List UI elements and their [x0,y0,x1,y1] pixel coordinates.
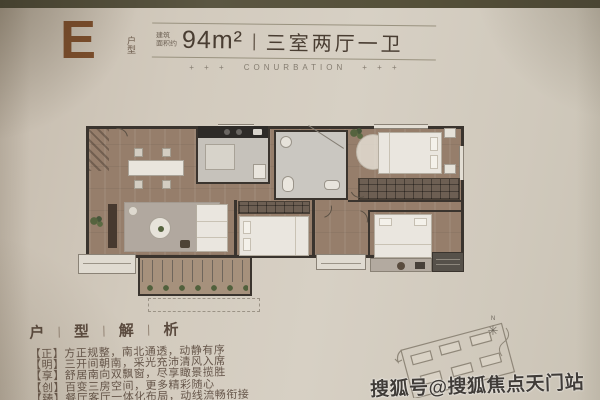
right-wall-window [459,146,464,180]
area-prefix-top: 建筑 [156,33,177,41]
title-separator: | [147,323,151,336]
plant-icon [350,128,364,140]
bedroom2-bed [239,216,309,256]
stove-burners-icon [224,129,230,135]
toilet-icon [282,176,294,192]
deco-word: CONURBATION [244,63,347,72]
area-prefix-bottom: 面积约 [156,40,177,48]
balcony-plants [142,284,248,293]
pillow [414,218,427,226]
unit-type-label: 户 型 [127,37,137,55]
floor-plan [78,116,470,320]
bedroom3-bed [374,214,432,258]
compass-star-icon: ✳ [488,323,499,338]
pillow [430,137,438,151]
bedroom2-wardrobe [238,201,310,214]
balcony [138,258,252,296]
ottoman-icon [180,240,190,248]
kitchen-sink-icon [253,129,262,135]
nightstand [444,128,456,138]
analysis-title-char: 户 [29,321,44,342]
interior-wall [368,210,464,212]
interior-wall [348,200,464,202]
nightstand [444,164,456,174]
bedroom3-desk [370,258,432,272]
pillow [243,221,251,234]
dining-set [126,146,188,192]
washer-icon [280,136,292,148]
desk-chair-icon [397,262,405,270]
sofa-cushion-line [197,221,227,222]
photo-top-edge [0,0,600,8]
interior-wall [234,200,237,258]
blanket-fold [295,217,296,255]
tv-cabinet [108,204,117,248]
pillow [379,218,392,226]
compass-north-label: N [482,316,504,322]
balcony-railing [142,260,248,282]
deco-subtitle: + + + CONURBATION + + + [150,63,440,72]
side-table-icon [128,206,138,216]
pillow [430,155,438,169]
pillow [243,238,251,251]
balcony-extension-dashed [148,298,260,312]
table-plant-icon [158,226,164,232]
blanket-fold [389,133,390,173]
entry-hatch-wall [89,129,109,171]
plant-icon [90,216,104,228]
kitchen-room [196,126,270,184]
analysis-lines: 【正】方正规整，南北通透，动静有序 【明】三开间朝南，采光充沛清风入席 【享】舒… [30,342,361,400]
title-separator: | [57,325,61,338]
deco-plus-right: + + + [362,63,400,72]
master-wardrobe [358,178,460,200]
deco-plus-left: + + + [189,63,227,72]
unit-analysis: 户 | 型 | 解 | 析 【正】方正规整，南北通透，动静有序 【明】三开间朝南… [29,314,361,400]
fridge-icon [253,164,266,179]
blanket-fold [375,244,431,245]
sofa-icon [196,204,228,252]
chair-icon [162,148,171,157]
compass: N ✳ [482,316,504,340]
bathroom-sink-icon [324,180,340,190]
area-band: 建筑 面积约 94m² | 三室两厅一卫 [152,23,436,61]
coffee-table-icon [149,217,171,239]
dining-table-icon [128,160,184,176]
ac-platform [432,252,464,272]
chair-icon [134,180,143,189]
desk-cabinet-icon [415,262,425,269]
master-window [374,124,428,129]
bay-window-left [78,254,136,274]
brochure-photo-page: E 户 型 建筑 面积约 94m² | 三室两厅一卫 + + + CONURBA… [0,0,600,400]
analysis-title-char: 析 [163,318,178,339]
chair-icon [134,148,143,157]
area-divider: | [252,31,257,52]
chair-icon [162,180,171,189]
unit-letter: E [60,14,96,66]
area-prefix: 建筑 面积约 [156,33,177,48]
layout-description: 三室两厅一卫 [266,27,404,57]
area-value: 94m² [182,26,243,56]
bathroom-room [274,130,348,200]
title-separator: | [102,324,106,337]
analysis-title-char: 型 [74,320,89,341]
unit-type-label-bottom: 型 [127,46,137,55]
master-bed [378,132,442,174]
sofa-cushion-line [197,237,227,238]
analysis-title-char: 解 [119,319,134,340]
kitchen-island [205,144,235,170]
bay-window-middle [316,254,366,270]
